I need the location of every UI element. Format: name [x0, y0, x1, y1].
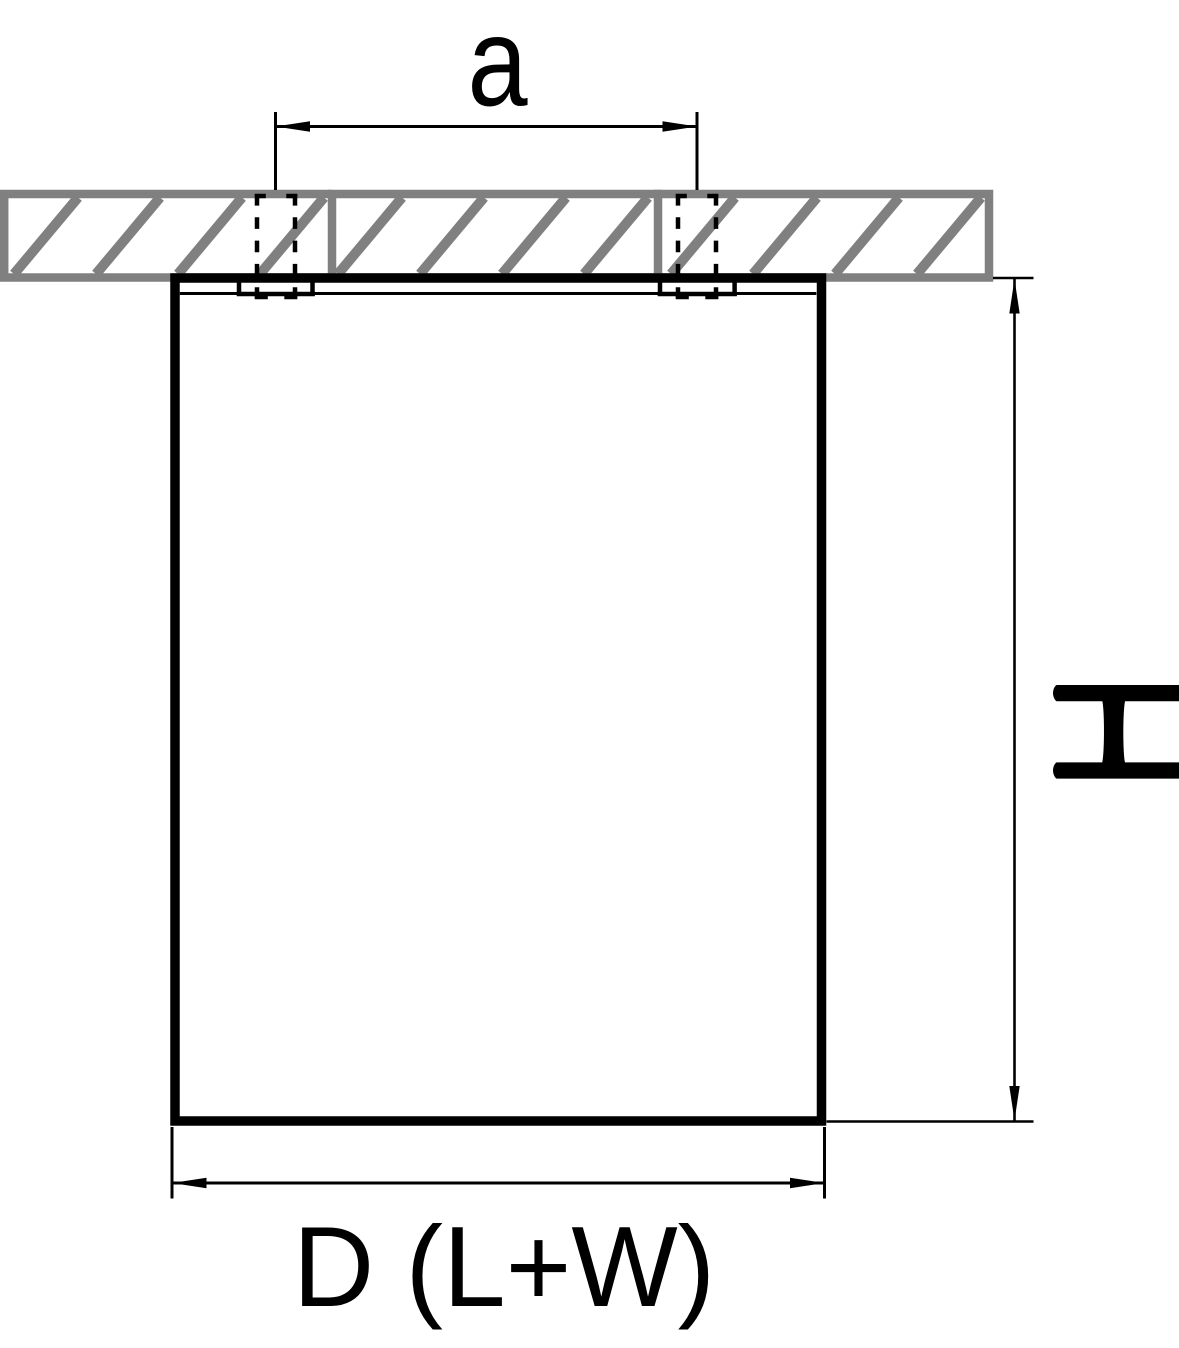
- svg-text:a: a: [467, 0, 527, 132]
- svg-text:D (L+W): D (L+W): [293, 1203, 715, 1331]
